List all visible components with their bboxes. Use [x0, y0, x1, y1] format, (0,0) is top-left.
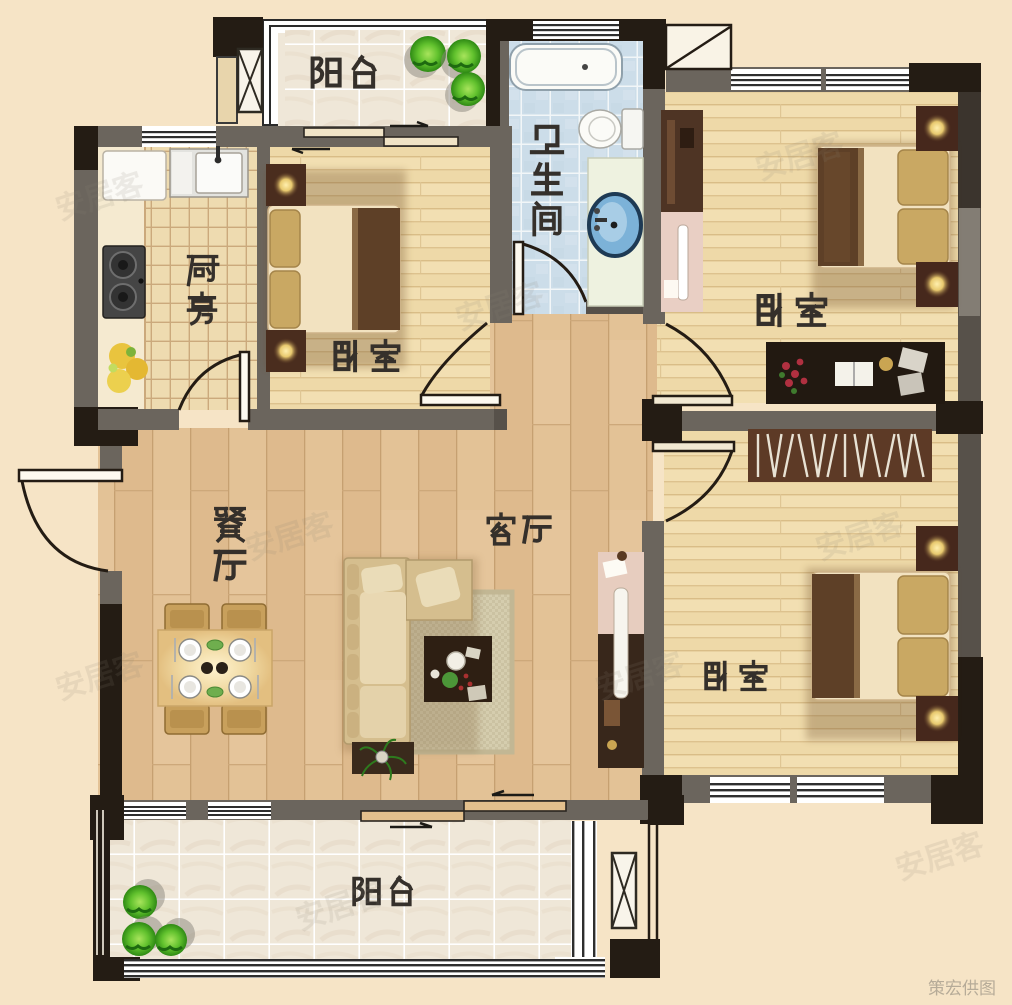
svg-text:策宏供图: 策宏供图 [928, 979, 996, 998]
